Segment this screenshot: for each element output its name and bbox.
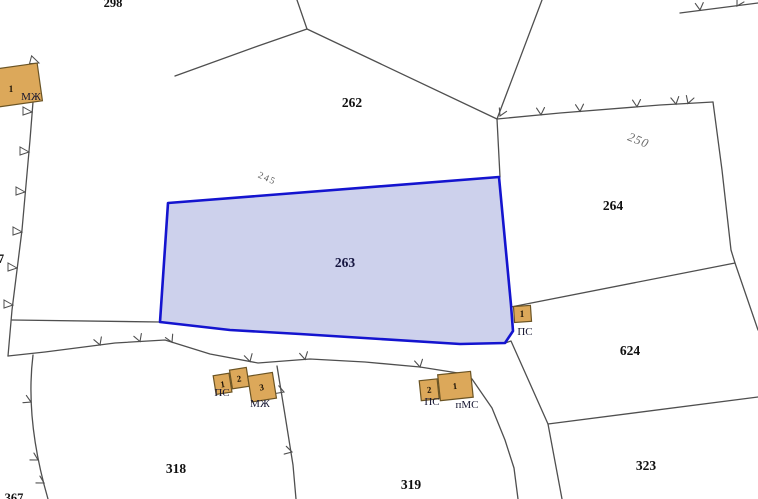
road-east-edge <box>505 341 562 499</box>
parcel-label-262: 262 <box>342 95 363 110</box>
parcel-label-318: 318 <box>166 461 187 476</box>
building-number: 1 <box>520 309 525 319</box>
boundary-262-northwest <box>175 29 497 119</box>
west-fence-line <box>8 64 36 356</box>
parcel-label-264: 264 <box>603 198 624 213</box>
parcel-label-263: 263 <box>335 255 356 270</box>
parcel-label-624: 624 <box>620 343 641 358</box>
building-type-label: МЖ <box>21 91 41 103</box>
parcel-label-323: 323 <box>636 458 657 473</box>
boundary-264-west-upper <box>497 119 500 177</box>
parcel-label-367-partial: 367 <box>5 491 24 499</box>
boundary-262-east <box>497 0 542 119</box>
building-type-label: пМС <box>455 399 478 411</box>
boundary-264-624-divider <box>511 263 735 307</box>
building-type-label: ПС <box>424 396 439 408</box>
building-northwest[interactable]: 1 МЖ <box>0 63 42 107</box>
fence-v-marks-264-north <box>496 0 744 118</box>
road-south-edge <box>8 340 518 499</box>
boundary-624-323-divider <box>548 397 758 424</box>
boundary-264-north <box>497 102 713 119</box>
parcel-label-7-partial: 7 <box>0 252 4 266</box>
boundary-318-west <box>31 355 48 499</box>
building-east[interactable]: 1 ПС <box>513 305 532 338</box>
parcel-label-319: 319 <box>401 477 422 492</box>
building-cluster-southeast[interactable]: 2 1 ПС пМС <box>419 371 479 411</box>
building-type-label: МЖ <box>250 398 270 410</box>
boundary-264-east <box>713 102 758 330</box>
line-number-250: 250 <box>626 130 651 151</box>
building-type-label: ПС <box>214 387 229 399</box>
line-number-245: 245 <box>256 171 277 188</box>
boundary-topright-fragment <box>680 3 758 13</box>
building-cluster-south[interactable]: 1 2 3 ПС МЖ <box>213 364 277 410</box>
boundary-318-319-divider <box>277 366 296 499</box>
cadastral-map-canvas[interactable]: 1 МЖ 1 2 3 ПС МЖ 2 1 ПС пМС 1 ПС 262 263… <box>0 0 758 499</box>
building-type-label: ПС <box>517 326 532 338</box>
boundary-top-stub <box>297 0 307 29</box>
parcel-label-298-partial: 298 <box>104 0 123 10</box>
building-number: 1 <box>9 84 14 94</box>
road-north-west-segment <box>12 320 160 322</box>
